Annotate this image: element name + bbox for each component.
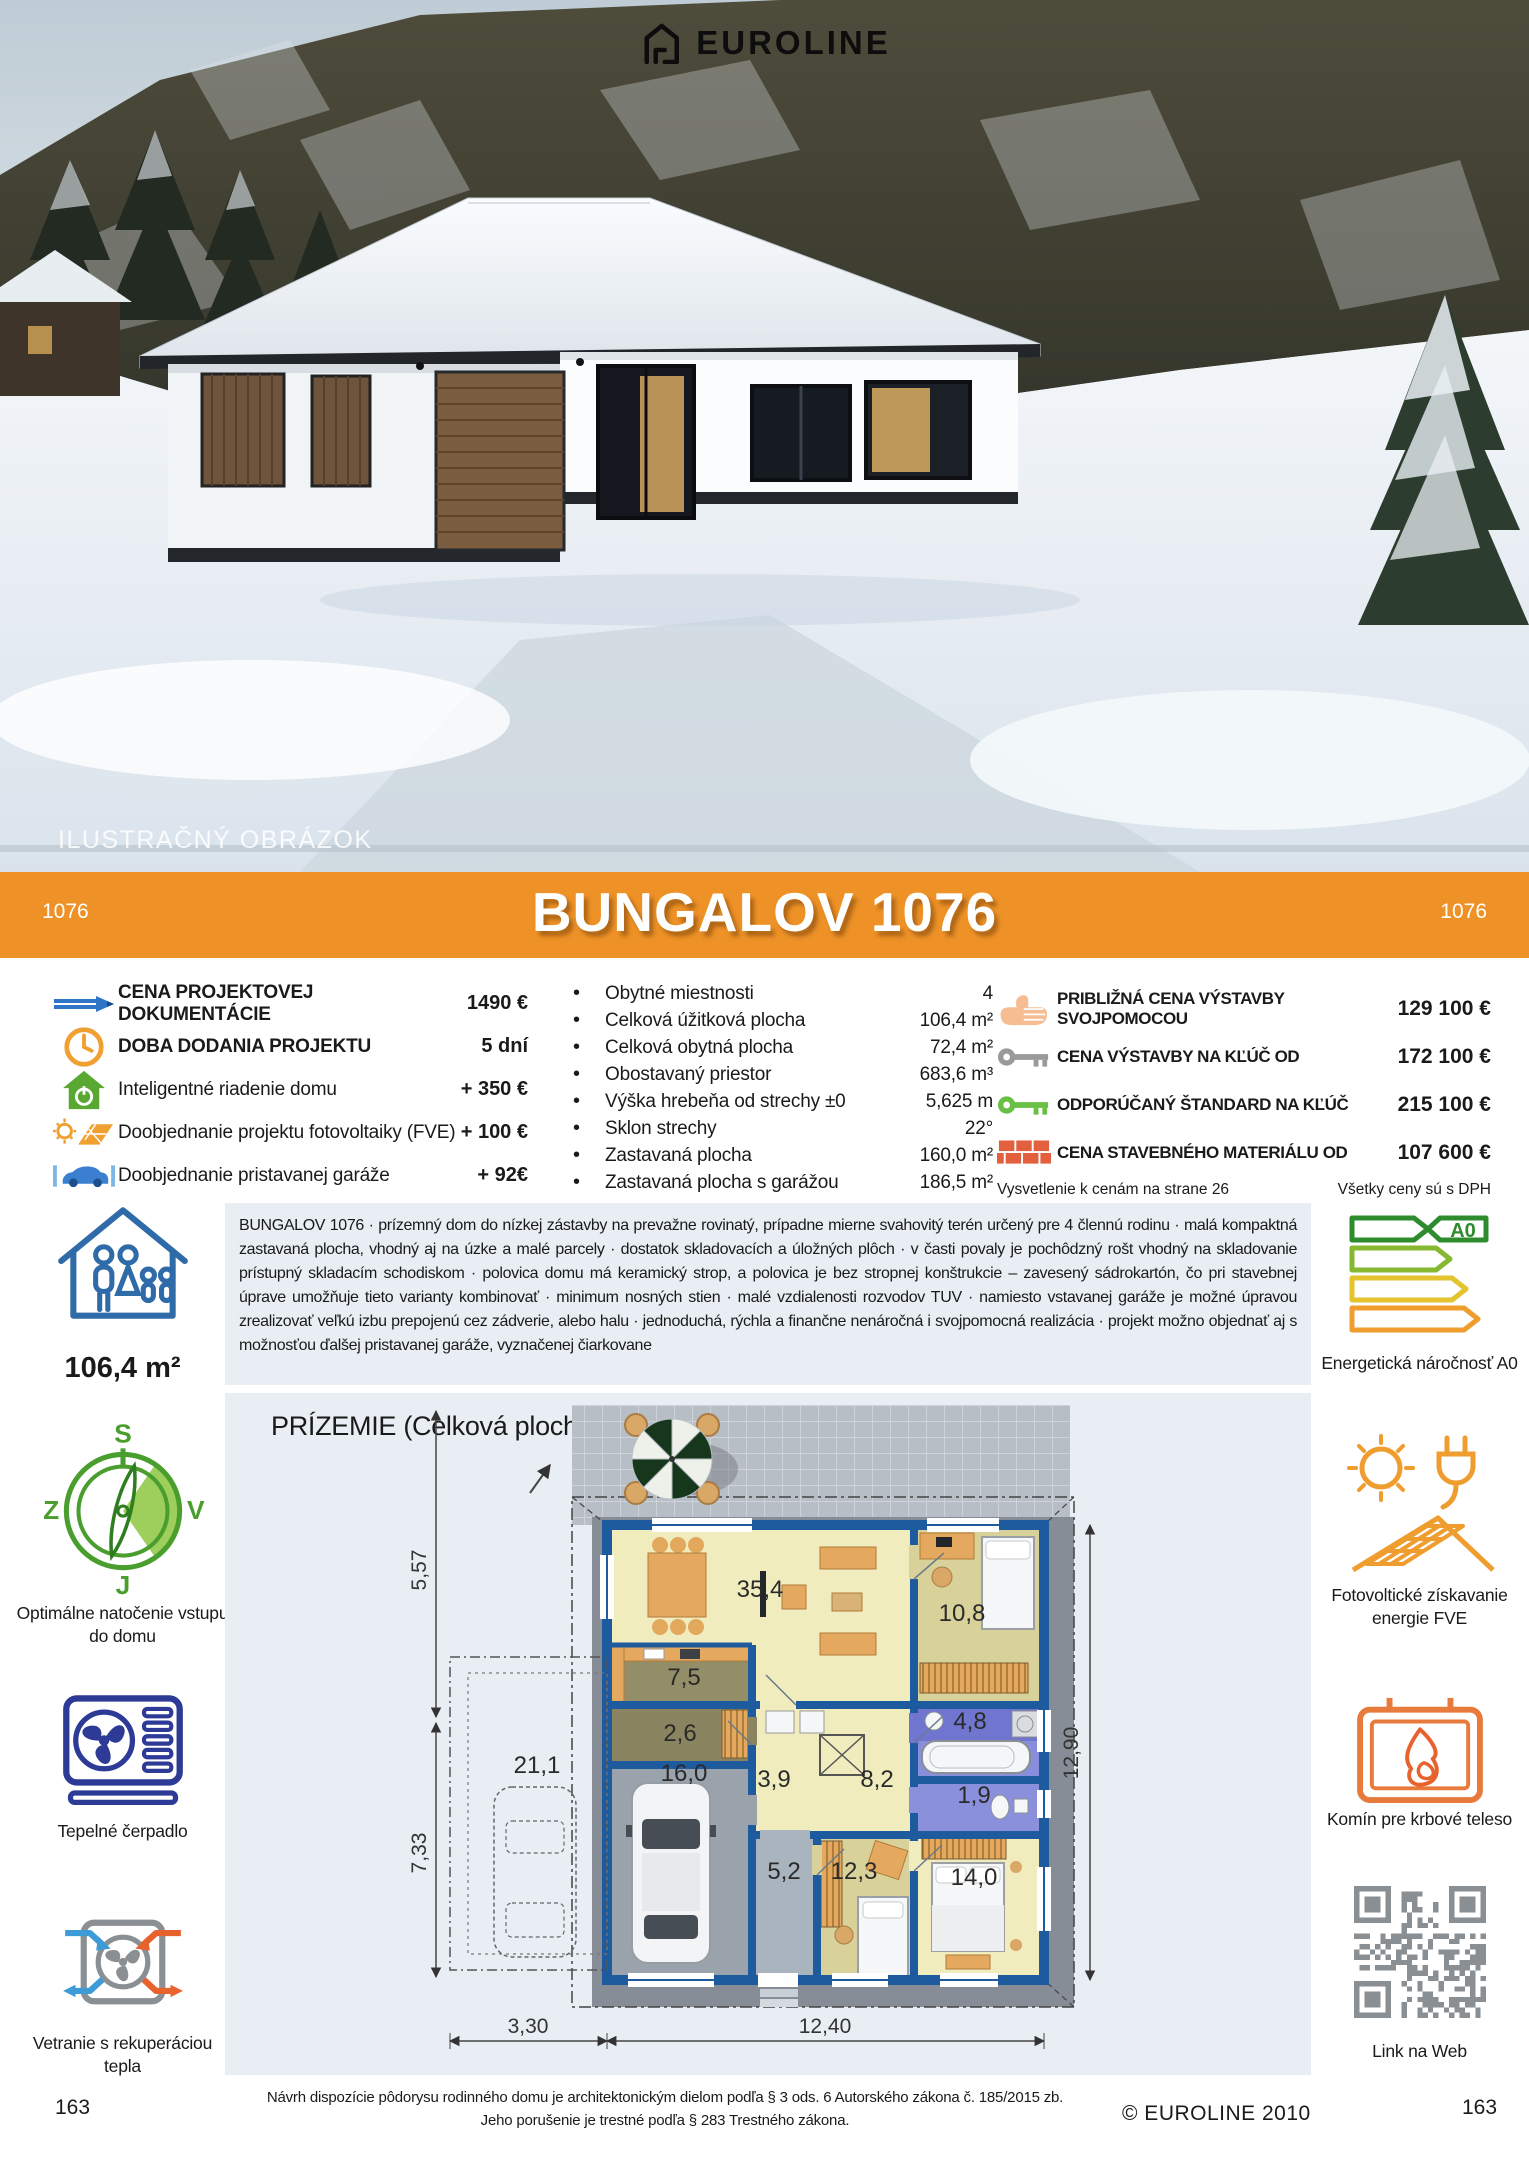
compass-north: S bbox=[114, 1418, 132, 1448]
ventilation-icon bbox=[61, 1900, 185, 2024]
spec-row: Zastavaná plocha s garážou186,5 m² bbox=[565, 1169, 993, 1196]
room-label: 1,9 bbox=[957, 1782, 990, 1809]
house-family-icon bbox=[47, 1196, 199, 1328]
spec-row: Sklon strechy22° bbox=[565, 1115, 993, 1142]
logo-text: EUROLINE bbox=[696, 24, 891, 62]
spec-row: Celková úžitková plocha106,4 m² bbox=[565, 1007, 993, 1034]
house-description: BUNGALOV 1076 · prízemný dom do nízkej z… bbox=[225, 1203, 1311, 1385]
ventilation-feature bbox=[15, 1900, 230, 2029]
page-title: BUNGALOV 1076 bbox=[0, 880, 1529, 944]
spec-row: Celková obytná plocha72,4 m² bbox=[565, 1034, 993, 1061]
pricing-row: DOBA DODANIA PROJEKTU 5 dní bbox=[50, 1025, 528, 1068]
construction-pricing-list: PRIBLIŽNÁ CENA VÝSTAVBY SVOJPOMOCOU 129 … bbox=[997, 985, 1491, 1199]
key-green-icon bbox=[997, 1093, 1057, 1117]
bullet-icon bbox=[565, 1090, 605, 1113]
room-label: 3,9 bbox=[757, 1766, 790, 1793]
pricing-row: ODPORÚČANÝ ŠTANDARD NA KĽÚČ 215 100 € bbox=[997, 1081, 1491, 1129]
bullet-icon bbox=[565, 982, 605, 1005]
bullet-icon bbox=[565, 1171, 605, 1194]
page-number-left: 163 bbox=[55, 2096, 90, 2120]
energy-label-icon: A0 bbox=[1344, 1210, 1496, 1346]
bullet-icon bbox=[565, 1036, 605, 1059]
room-label: 21,1 bbox=[514, 1752, 561, 1779]
dim-right: 12,90 bbox=[1060, 1727, 1083, 1780]
dim-left-top: 5,57 bbox=[408, 1550, 431, 1591]
pricing-row: CENA PROJEKTOVEJ DOKUMENTÁCIE 1490 € bbox=[50, 982, 528, 1025]
optional-garage-outline bbox=[450, 1657, 607, 1970]
pricing-row: PRIBLIŽNÁ CENA VÝSTAVBY SVOJPOMOCOU 129 … bbox=[997, 985, 1491, 1033]
bullet-icon bbox=[565, 1117, 605, 1140]
smart-home-icon bbox=[50, 1069, 118, 1111]
room-label: 7,5 bbox=[667, 1664, 700, 1691]
model-code-right: 1076 bbox=[1440, 900, 1487, 924]
room-label: 16,0 bbox=[661, 1760, 708, 1787]
clock-icon bbox=[50, 1025, 118, 1069]
key-gray-icon bbox=[997, 1045, 1057, 1069]
qr-code bbox=[1354, 1886, 1486, 2018]
spec-row: Obostavaný priestor683,6 m³ bbox=[565, 1061, 993, 1088]
house-photo: EUROLINE ILUSTRAČNÝ OBRÁZOK bbox=[0, 0, 1529, 872]
qr-feature bbox=[1312, 1886, 1527, 2023]
compass-south: J bbox=[115, 1570, 130, 1596]
energy-caption: Energetická náročnosť A0 bbox=[1312, 1352, 1527, 1375]
room-label: 4,8 bbox=[953, 1708, 986, 1735]
room-label: 2,6 bbox=[663, 1720, 696, 1747]
dim-left-bottom: 7,33 bbox=[408, 1833, 431, 1874]
hand-icon bbox=[997, 991, 1057, 1027]
pricing-row: Doobjednanie pristavanej garáže + 92€ bbox=[50, 1154, 528, 1197]
euroline-house-icon bbox=[638, 22, 684, 64]
energy-rating-feature: A0 bbox=[1312, 1210, 1527, 1351]
room-label: 14,0 bbox=[951, 1864, 998, 1891]
euroline-logo: EUROLINE bbox=[638, 22, 891, 64]
pricing-row: CENA STAVEBNÉHO MATERIÁLU OD 107 600 € bbox=[997, 1129, 1491, 1177]
chimney-caption: Komín pre krbové teleso bbox=[1312, 1808, 1527, 1831]
floorplan-drawing: 5,57 7,33 12,90 3,30 12,40 35,4 7,5 2,6 … bbox=[397, 1401, 1303, 2065]
catalog-page: EUROLINE ILUSTRAČNÝ OBRÁZOK 1076 BUNGALO… bbox=[0, 0, 1529, 2160]
room-label: 12,3 bbox=[831, 1858, 878, 1885]
pricing-row: Doobjednanie projektu fotovoltaiky (FVE)… bbox=[50, 1111, 528, 1154]
spec-row: Obytné miestnosti4 bbox=[565, 980, 993, 1007]
room-label: 5,2 bbox=[767, 1858, 800, 1885]
photovoltaic-feature bbox=[1312, 1428, 1527, 1585]
dim-bottom-right: 12,40 bbox=[799, 2015, 852, 2038]
usable-area: 106,4 m² bbox=[15, 1352, 230, 1385]
bullet-icon bbox=[565, 1144, 605, 1167]
house-family-feature bbox=[15, 1196, 230, 1333]
energy-class-label: A0 bbox=[1450, 1220, 1476, 1242]
compass-west: Z bbox=[43, 1495, 59, 1525]
room-label: 10,8 bbox=[939, 1600, 986, 1627]
dim-bottom-left: 3,30 bbox=[508, 2015, 549, 2038]
fireplace-icon bbox=[1346, 1694, 1494, 1806]
note-prices-explained: Vysvetlenie k cenám na strane 26 bbox=[997, 1181, 1229, 1199]
pricing-row: Inteligentné riadenie domu + 350 € bbox=[50, 1068, 528, 1111]
project-pricing-list: CENA PROJEKTOVEJ DOKUMENTÁCIE 1490 € DOB… bbox=[50, 982, 528, 1197]
compass-caption: Optimálne natočenie vstupu do domu bbox=[15, 1602, 230, 1648]
legal-line-2: Jeho porušenie je trestné podľa § 283 Tr… bbox=[225, 2109, 1105, 2132]
heatpump-caption: Tepelné čerpadlo bbox=[15, 1820, 230, 1843]
chimney-feature bbox=[1312, 1694, 1527, 1811]
note-vat: Všetky ceny sú s DPH bbox=[1338, 1181, 1491, 1199]
legal-line-1: Návrh dispozície pôdorysu rodinného domu… bbox=[225, 2086, 1105, 2109]
winter-scene-illustration bbox=[0, 0, 1529, 872]
page-number-right: 163 bbox=[1462, 2096, 1497, 2120]
qr-caption: Link na Web bbox=[1312, 2040, 1527, 2063]
garage-door bbox=[436, 372, 564, 550]
compass-icon: S Z V J bbox=[37, 1418, 209, 1596]
legal-notice: Návrh dispozície pôdorysu rodinného domu… bbox=[225, 2086, 1105, 2133]
north-arrow-icon bbox=[530, 1465, 550, 1493]
spec-row: Výška hrebeňa od strechy ±05,625 m bbox=[565, 1088, 993, 1115]
photovoltaic-caption: Fotovoltické získavanie energie FVE bbox=[1312, 1584, 1527, 1630]
copyright: © EUROLINE 2010 bbox=[1122, 2102, 1311, 2126]
car-icon bbox=[50, 1163, 118, 1189]
photo-watermark: ILUSTRAČNÝ OBRÁZOK bbox=[58, 826, 373, 855]
solar-icon bbox=[50, 1118, 118, 1148]
specifications-list: Obytné miestnosti4 Celková úžitková ploc… bbox=[565, 980, 993, 1196]
pencil-icon bbox=[50, 993, 118, 1015]
ventilation-caption: Vetranie s rekuperáciou tepla bbox=[15, 2032, 230, 2078]
compass-feature: S Z V J bbox=[15, 1418, 230, 1601]
heat-pump-icon bbox=[60, 1692, 186, 1812]
room-label: 8,2 bbox=[860, 1766, 893, 1793]
floorplan-panel: PRÍZEMIE (Celková plocha: 122,4 m²) bbox=[225, 1393, 1311, 2075]
pricing-row: CENA VÝSTAVBY NA KĽÚČ OD 172 100 € bbox=[997, 1033, 1491, 1081]
spec-row: Zastavaná plocha160,0 m² bbox=[565, 1142, 993, 1169]
room-label: 35,4 bbox=[737, 1576, 784, 1603]
pricing-notes: Vysvetlenie k cenám na strane 26 Všetky … bbox=[997, 1181, 1491, 1199]
title-banner: 1076 BUNGALOV 1076 1076 bbox=[0, 872, 1529, 958]
bullet-icon bbox=[565, 1009, 605, 1032]
photovoltaic-icon bbox=[1343, 1428, 1497, 1580]
bullet-icon bbox=[565, 1063, 605, 1086]
heatpump-feature bbox=[15, 1692, 230, 1817]
compass-east: V bbox=[187, 1495, 205, 1525]
bricks-icon bbox=[997, 1138, 1057, 1168]
